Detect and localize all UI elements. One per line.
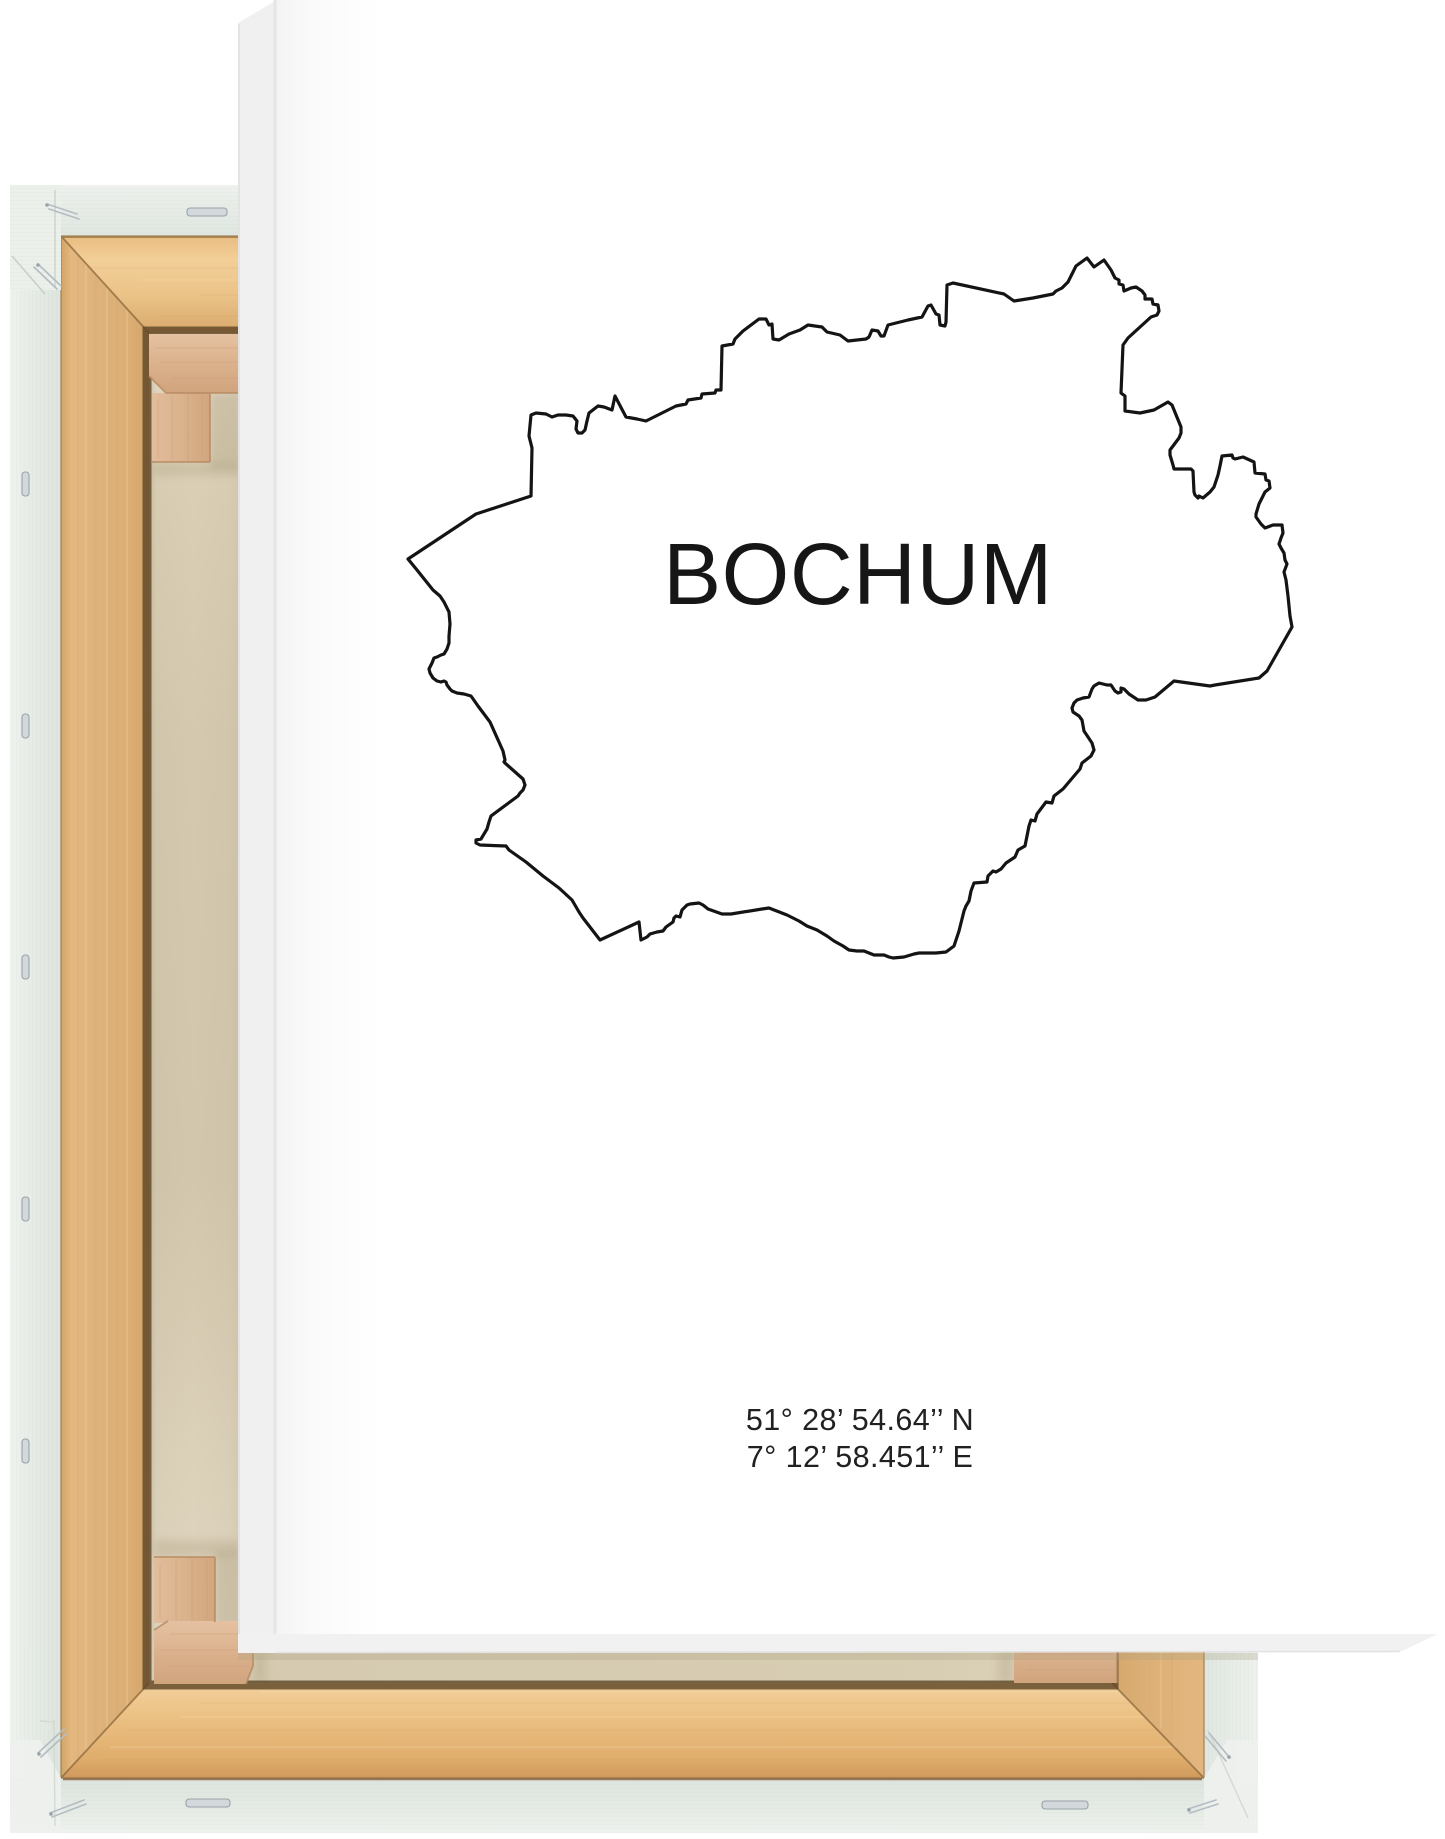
svg-text:BOCHUM: BOCHUM: [663, 526, 1053, 623]
svg-text:7° 12’ 58.451’’ E: 7° 12’ 58.451’’ E: [747, 1440, 973, 1474]
svg-text:51° 28’ 54.64’’ N: 51° 28’ 54.64’’ N: [746, 1403, 974, 1437]
